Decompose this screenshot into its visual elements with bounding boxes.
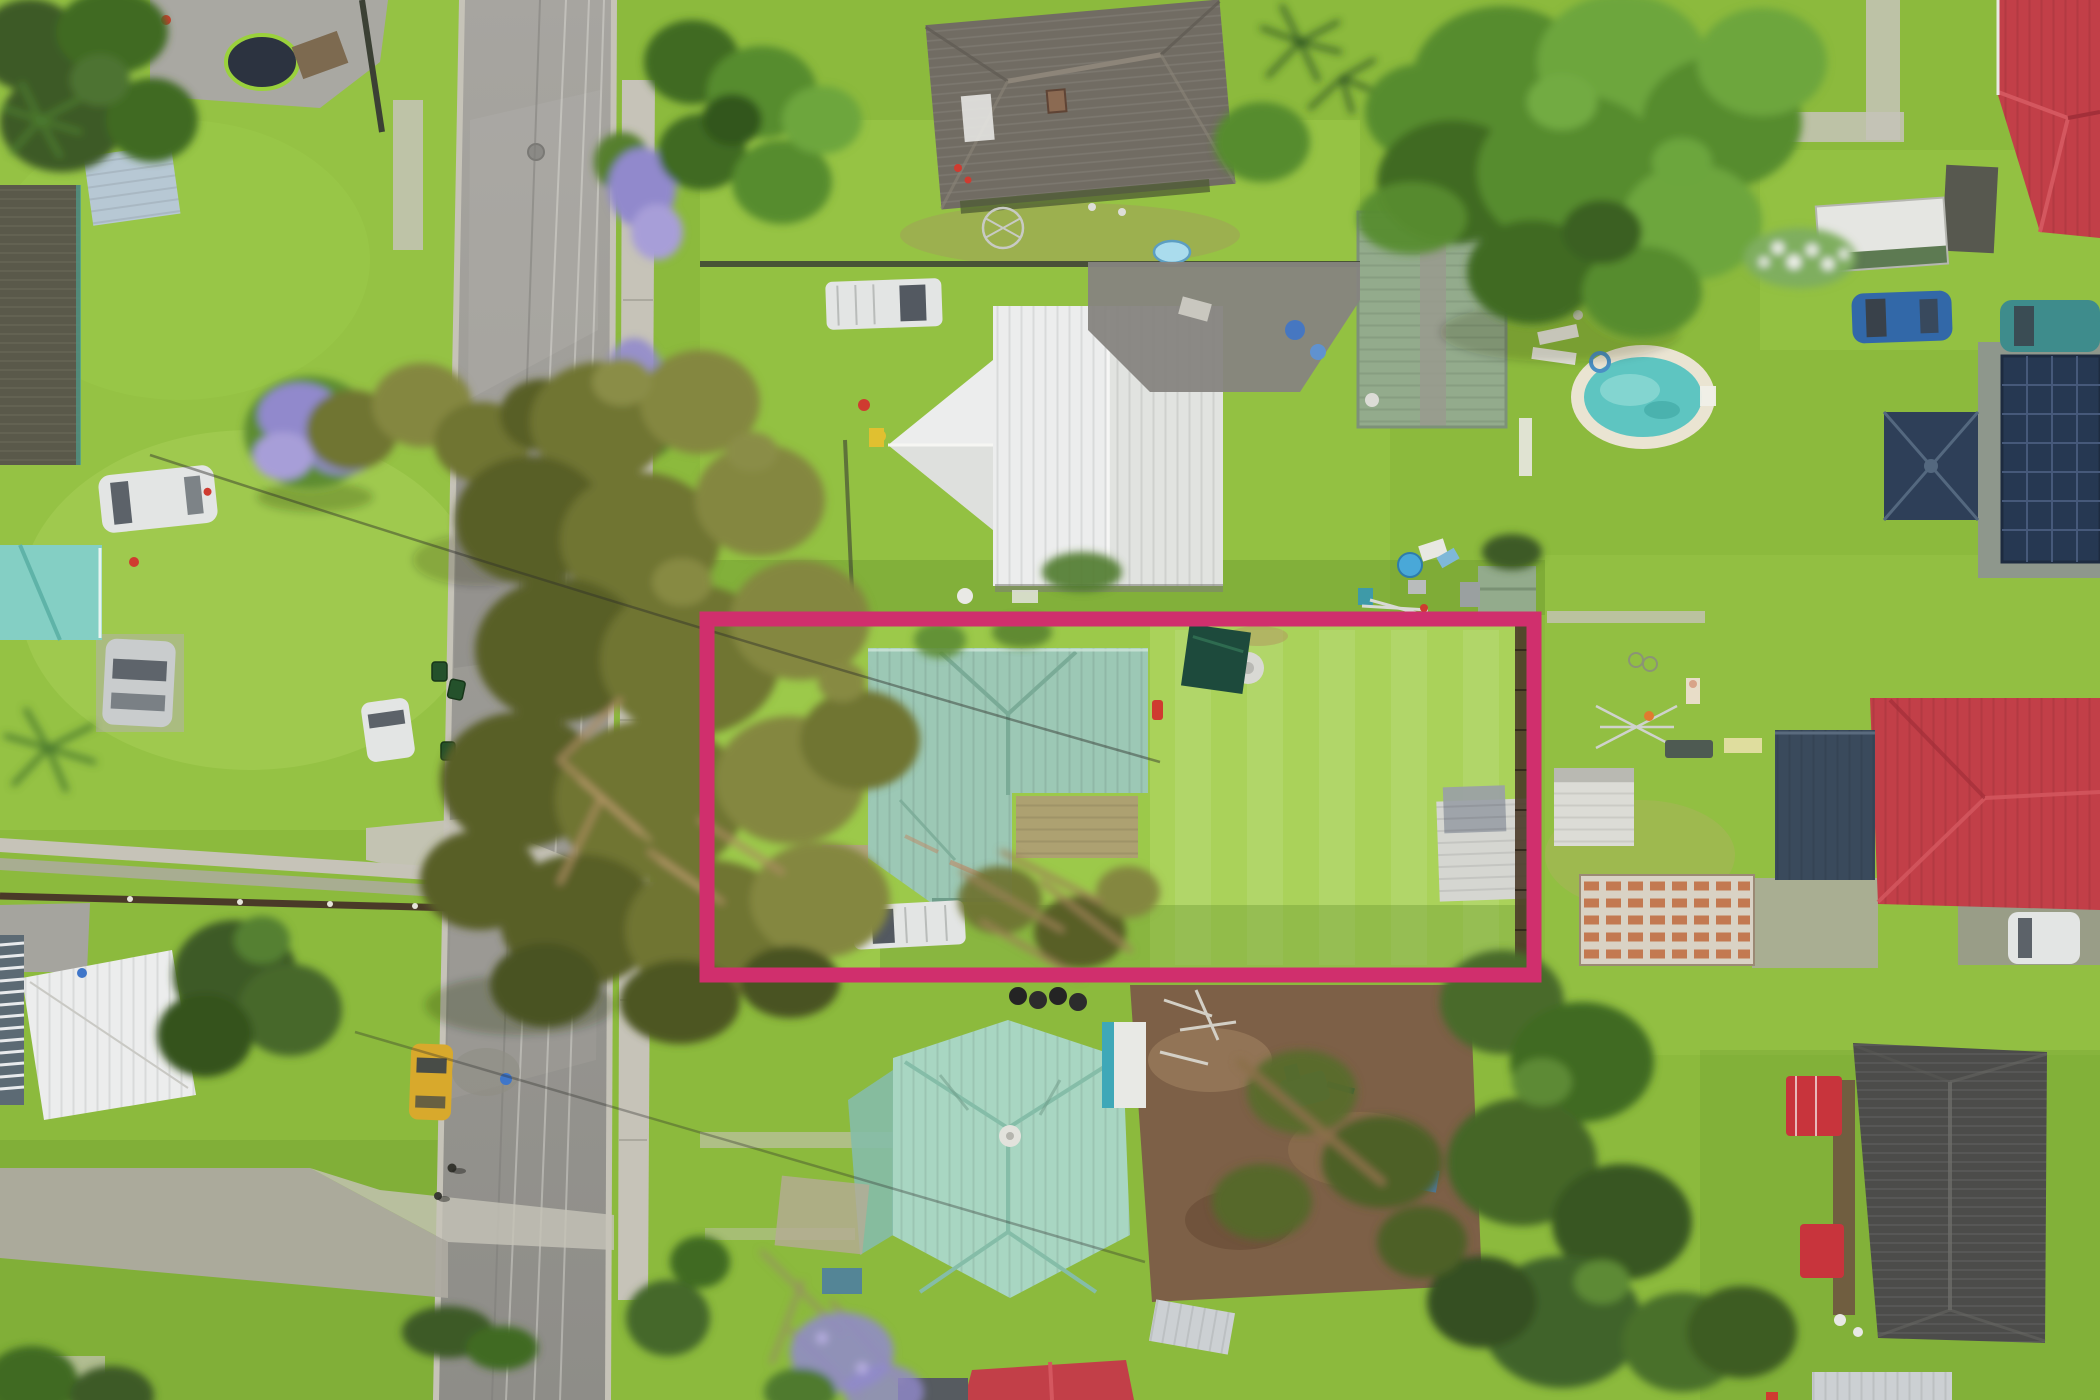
lounge-chair: [1665, 740, 1713, 758]
solar-panel-roof-house: [1978, 342, 2100, 578]
chimney: [1047, 89, 1067, 112]
red-awning-2: [1800, 1224, 1844, 1278]
toy-car-yellow: [874, 430, 886, 442]
garden-table: [957, 588, 973, 604]
blue-tarp-2: [822, 1268, 862, 1294]
white-car-left-lawn: [97, 464, 218, 534]
white-shed-right: [1554, 768, 1634, 846]
rusty-shed-roof: [1580, 875, 1754, 965]
top-street-house-dark-shingle: [925, 0, 1236, 215]
person-in-red: [1152, 700, 1163, 720]
white-car-road-verge: [360, 697, 416, 763]
debris-pile-beside-yellow-car: [452, 1048, 520, 1096]
trampoline-top-left: [226, 35, 298, 89]
pool-ladder: [1700, 386, 1716, 406]
orange-ball: [1644, 711, 1654, 721]
shade-tarp-structure: [1181, 624, 1251, 694]
tree-right-of-driveway: [1214, 102, 1310, 182]
hedge-above-boundary: [1042, 552, 1122, 592]
aerial-photo: [0, 0, 2100, 1400]
red-awning-1: [1786, 1076, 1842, 1136]
white-flower-bush: [1744, 228, 1856, 288]
white-ute-front-neighbour: [825, 278, 943, 330]
left-edge-house-dark-roof: [0, 185, 81, 465]
silver-car-left: [102, 638, 176, 728]
neighbour-path-right: [1547, 611, 1705, 623]
small-white-shed: [961, 94, 995, 142]
bbq: [1460, 582, 1480, 607]
blue-car-right: [1851, 290, 1953, 343]
aerial-photo-canvas: [0, 0, 2100, 1400]
navy-gazebo: [1884, 412, 1978, 520]
right-courtyard: [1752, 878, 1878, 968]
person-sunbathing: [1689, 680, 1697, 688]
letterbox: [129, 557, 139, 567]
footpath-left-top: [393, 100, 423, 250]
louvre-awning: [0, 935, 24, 1105]
left-edge-house-teal-roof: [0, 545, 102, 640]
white-car-right-driveway: [2008, 912, 2080, 964]
green-shed-boundary-corner: [1478, 566, 1536, 612]
teal-car-right-edge: [2000, 300, 2100, 352]
kiddie-pool-blue: [1398, 553, 1422, 577]
dark-shed: [1942, 165, 1998, 254]
toy-car-red: [858, 399, 870, 411]
clam-pool: [1154, 241, 1190, 263]
